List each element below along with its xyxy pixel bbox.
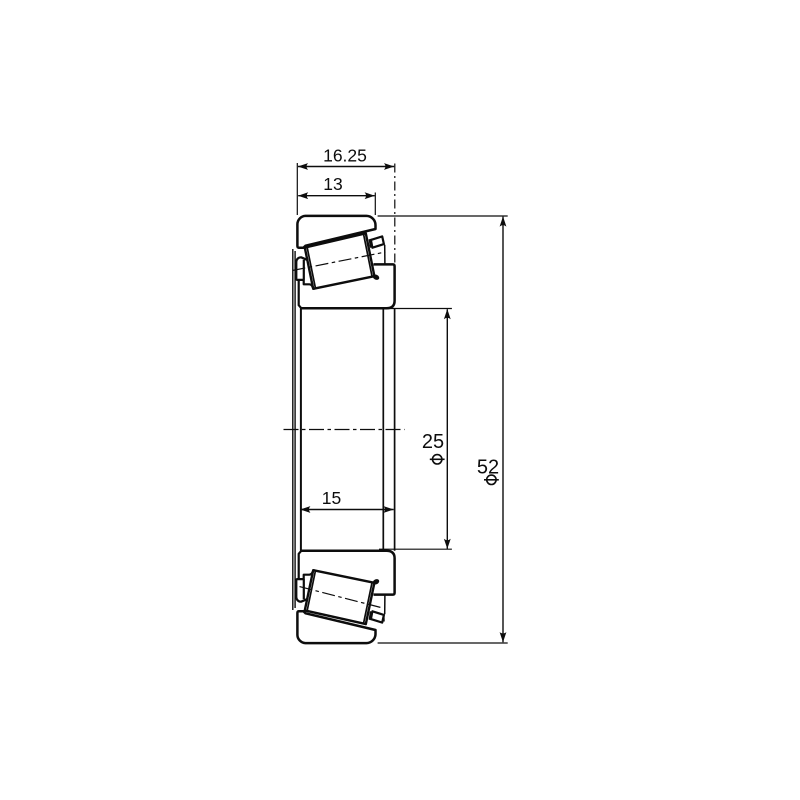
svg-text:52: 52: [477, 457, 499, 479]
svg-text:13: 13: [323, 174, 342, 194]
svg-text:16.25: 16.25: [323, 146, 367, 166]
svg-text:15: 15: [322, 488, 341, 508]
svg-text:25: 25: [422, 431, 444, 453]
